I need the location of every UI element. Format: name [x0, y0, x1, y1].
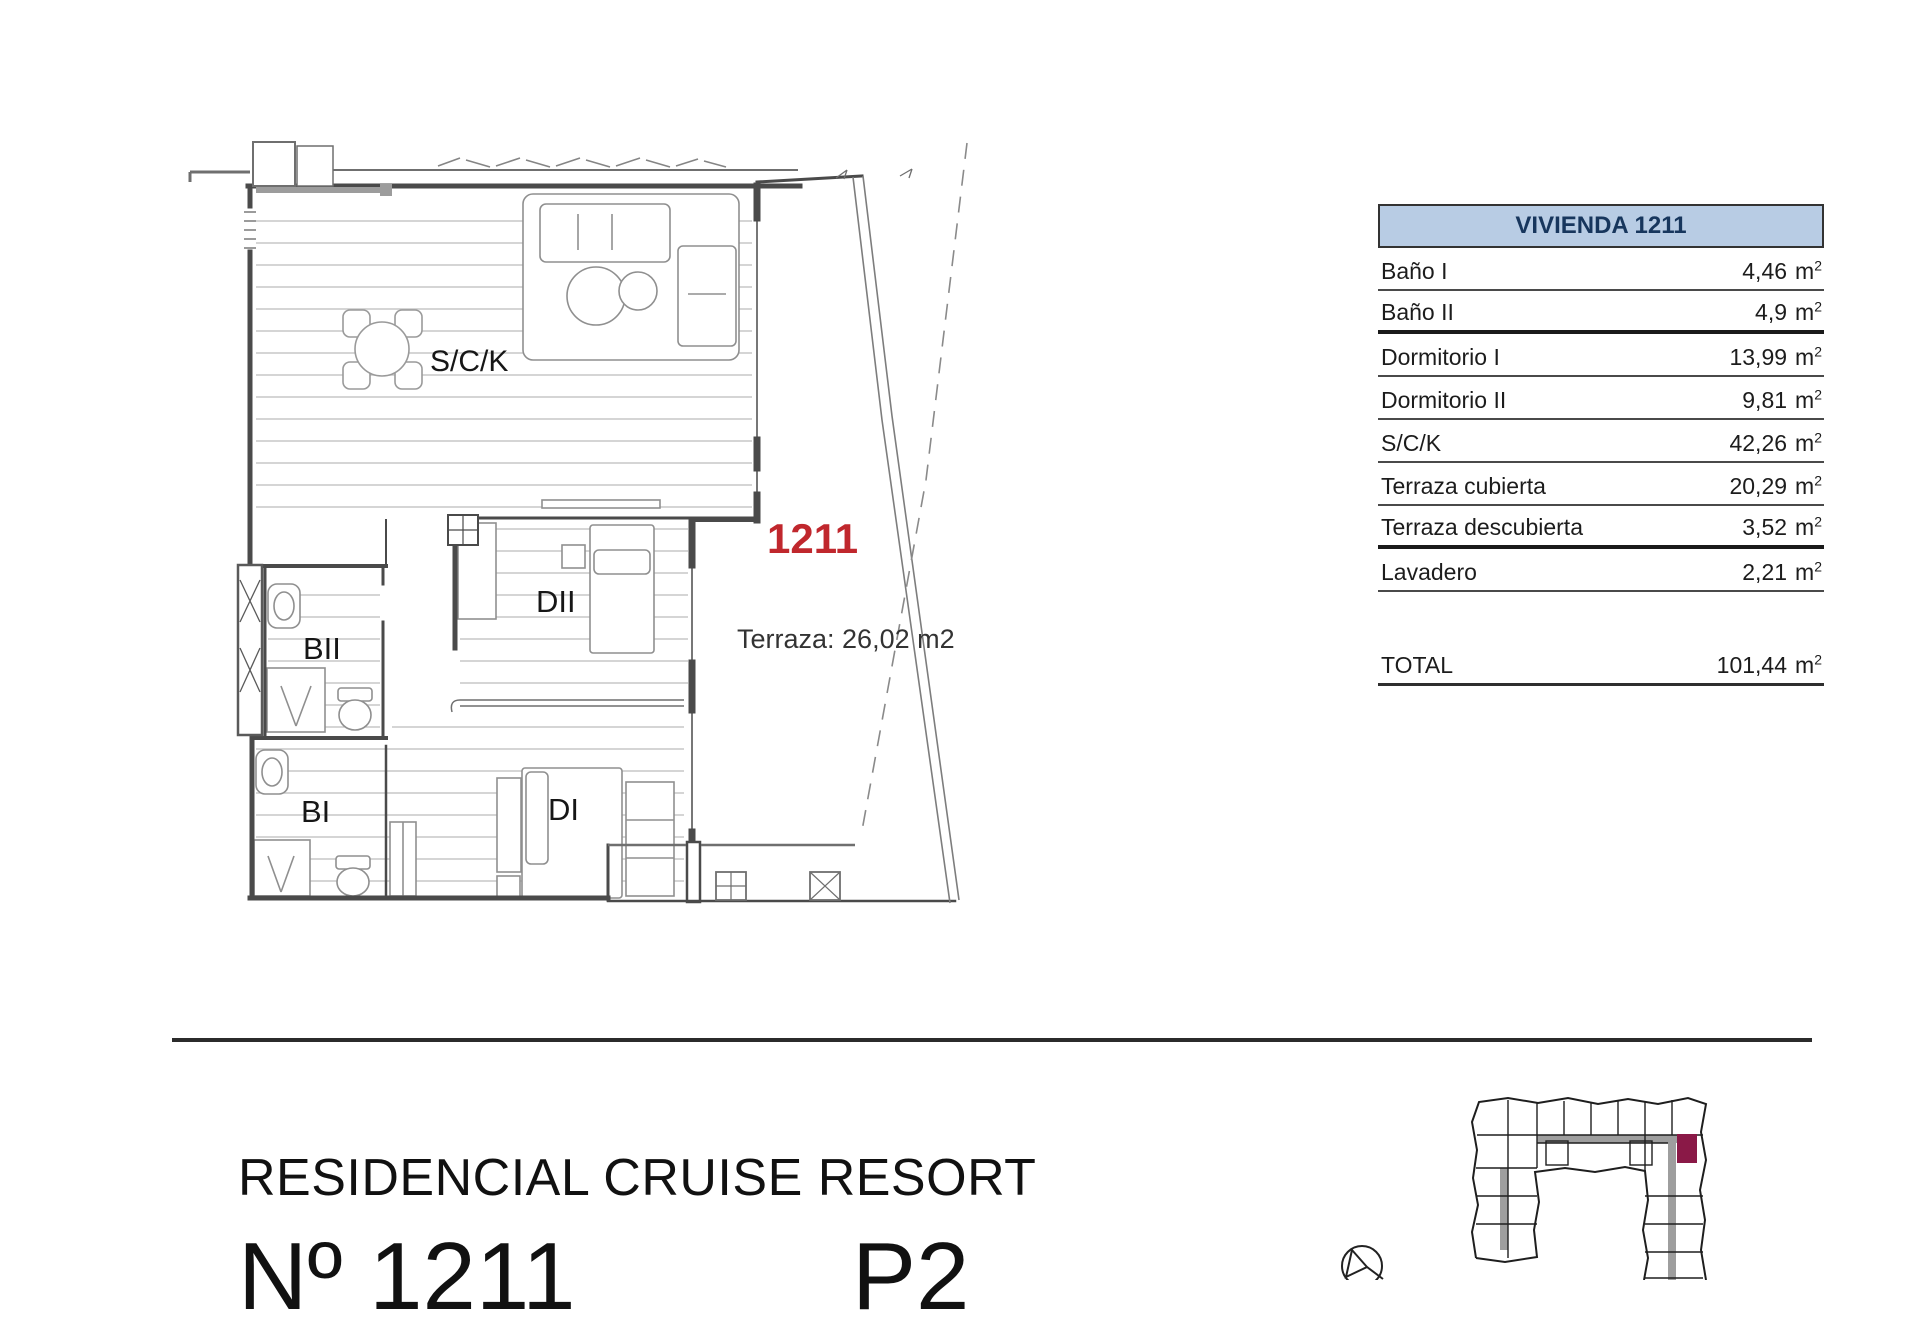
total-label: TOTAL	[1381, 652, 1453, 679]
table-row: Dormitorio II 9,81m2	[1378, 377, 1824, 420]
row-label: S/C/K	[1381, 430, 1441, 457]
row-value: 4,9m2	[1755, 299, 1822, 326]
table-row: Baño I 4,46m2	[1378, 248, 1824, 291]
table-row: Baño II 4,9m2	[1378, 291, 1824, 334]
project-name: RESIDENCIAL CRUISE RESORT	[238, 1148, 1036, 1208]
plot-boundary-lines	[853, 143, 967, 903]
planter-box	[253, 142, 295, 186]
highlighted-unit-cell	[1677, 1134, 1697, 1163]
footer-divider	[172, 1038, 1812, 1042]
row-label: Terraza descubierta	[1381, 514, 1583, 541]
row-value: 2,21m2	[1742, 559, 1822, 586]
table-row: Terraza cubierta 20,29m2	[1378, 463, 1824, 506]
area-table: VIVIENDA 1211 Baño I 4,46m2 Baño II 4,9m…	[1378, 204, 1824, 686]
label-bedroom2: DII	[536, 584, 576, 619]
total-value: 101,44m2	[1717, 652, 1822, 679]
unit-number-label: 1211	[767, 515, 858, 562]
label-bath2: BII	[303, 631, 341, 666]
plan-sheet-page: { "floor_plan": { "unit_number": "1211",…	[0, 0, 1920, 1280]
table-row: Dormitorio I 13,99m2	[1378, 334, 1824, 377]
window-ticks	[244, 212, 256, 248]
row-label: Lavadero	[1381, 559, 1477, 586]
row-value: 3,52m2	[1742, 514, 1822, 541]
table-total-row: TOTAL 101,44m2	[1378, 592, 1824, 686]
site-plan-map	[1472, 1098, 1706, 1280]
row-value: 4,46m2	[1742, 258, 1822, 285]
table-row: Lavadero 2,21m2	[1378, 549, 1824, 592]
balustrade-squiggle	[438, 158, 726, 167]
planter-box	[297, 146, 333, 186]
duct-shaft	[238, 565, 262, 735]
row-value: 13,99m2	[1729, 344, 1822, 371]
label-bedroom1: DI	[548, 792, 579, 827]
row-value: 9,81m2	[1742, 387, 1822, 414]
unit-number-title: Nº 1211	[238, 1222, 576, 1332]
row-label: Terraza cubierta	[1381, 473, 1546, 500]
label-bath1: BI	[301, 794, 330, 829]
row-label: Baño I	[1381, 258, 1448, 285]
row-label: Baño II	[1381, 299, 1454, 326]
table-row: Terraza descubierta 3,52m2	[1378, 506, 1824, 549]
label-living: S/C/K	[430, 345, 508, 378]
row-label: Dormitorio I	[1381, 344, 1500, 371]
floor-title: P2	[852, 1222, 969, 1332]
row-label: Dormitorio II	[1381, 387, 1506, 414]
terrace-area-note: Terraza: 26,02 m2	[737, 624, 955, 654]
compass-icon	[1342, 1246, 1383, 1280]
row-value: 42,26m2	[1729, 430, 1822, 457]
table-row: S/C/K 42,26m2	[1378, 420, 1824, 463]
area-table-header: VIVIENDA 1211	[1378, 204, 1824, 248]
row-value: 20,29m2	[1729, 473, 1822, 500]
